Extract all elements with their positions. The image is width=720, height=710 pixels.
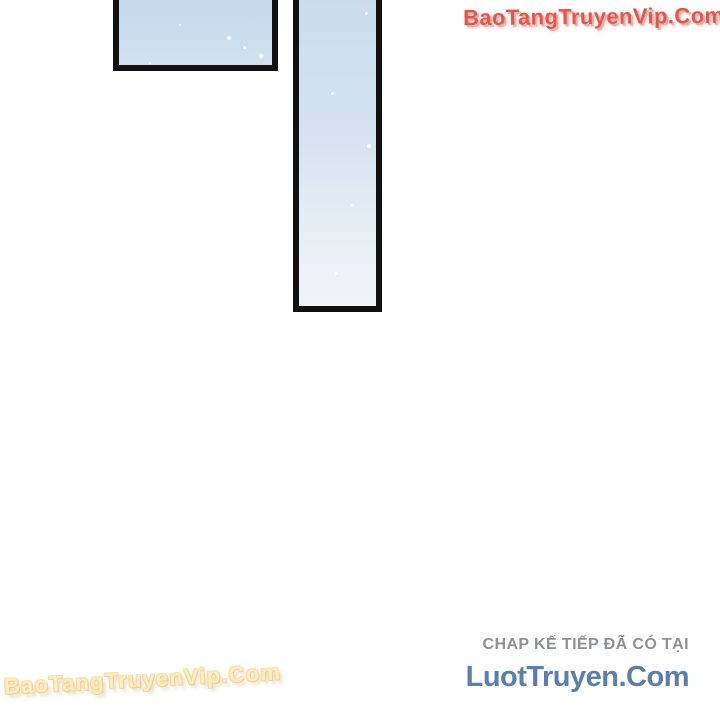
site-name-luottruyen: LuotTruyen.Com	[466, 661, 689, 694]
watermark-baotangtruyenvip-top-right: BaoTangTruyenVip.Com	[463, 5, 720, 29]
snow-speck	[259, 54, 263, 58]
watermark-baotangtruyenvip-bottom-left: BaoTangTruyenVip.Com	[3, 661, 281, 697]
footer-promo: CHAP KẾ TIẾP ĐÃ CÓ TẠI LuotTruyen.Com	[466, 636, 689, 694]
comic-panel-tall	[293, 0, 382, 312]
snow-speck	[365, 12, 368, 15]
snow-speck	[227, 36, 231, 40]
comic-panel-small	[113, 0, 278, 71]
snow-speck	[331, 92, 334, 95]
snow-speck	[243, 46, 246, 49]
snow-speck	[179, 24, 181, 26]
comic-page: BaoTangTruyenVip.Com BaoTangTruyenVip.Co…	[0, 0, 720, 710]
next-chapter-note: CHAP KẾ TIẾP ĐÃ CÓ TẠI	[466, 636, 689, 654]
snow-speck	[149, 62, 151, 64]
snow-speck	[335, 272, 338, 275]
snow-speck	[351, 204, 353, 206]
snow-speck	[367, 144, 371, 148]
